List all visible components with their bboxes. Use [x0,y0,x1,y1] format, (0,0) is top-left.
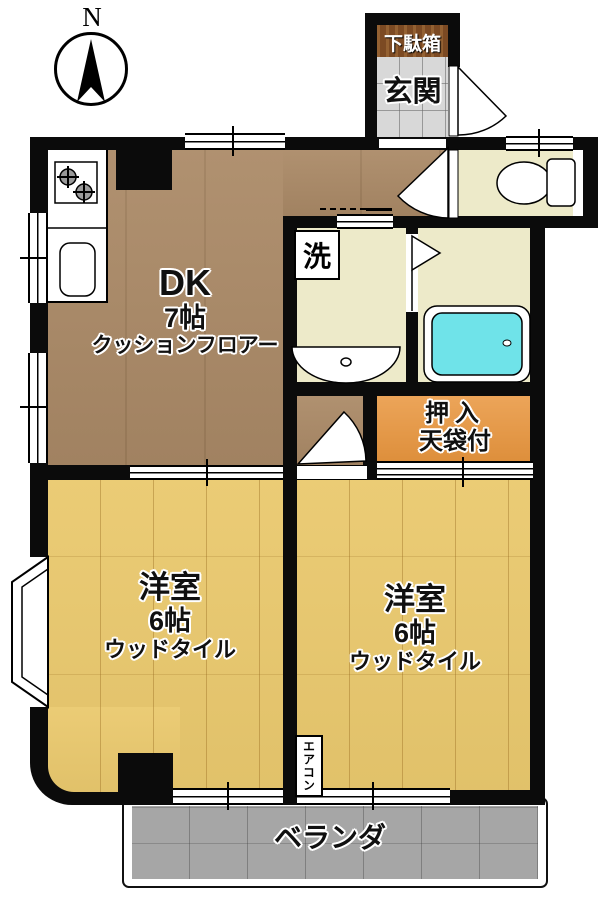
laundry-box: 洗 [294,230,340,280]
closet-note: 天袋付 [377,428,533,456]
aircon-box: エアコン [295,735,323,797]
compass-needle-icon [77,39,105,102]
western-right-size: 6帖 [290,618,540,649]
closet-name: 押入 [377,400,533,428]
western-left-floor-type: ウッドタイル [45,637,295,662]
closet-label-block: 押入 天袋付 [377,400,533,455]
toilet-door-swing [398,148,448,218]
toilet-tank-icon [547,159,575,206]
veranda-label: ベランダ [230,822,430,854]
western-right-floor-type: ウッドタイル [290,649,540,674]
dk-label-block: DK 7帖 クッションフロアー [55,262,315,359]
toilet-bowl-icon [497,162,551,204]
western-left-label-block: 洋室 6帖 ウッドタイル [45,570,295,662]
entrance-door-leaf [449,66,458,136]
washbasin-drain-icon [341,358,351,366]
entrance-door-swing [458,67,506,135]
laundry-label: 洗 [303,235,331,275]
western-left-name: 洋室 [45,570,295,606]
dk-name: DK [55,262,315,303]
toilet-door-leaf [449,150,458,218]
bedroom-door-swing [298,412,366,464]
bay-window [12,557,48,707]
western-right-label-block: 洋室 6帖 ウッドタイル [290,582,540,674]
shoe-cabinet-label: 下駄箱 [377,29,448,56]
floor-plan: N [0,0,603,900]
western-left-size: 6帖 [45,606,295,637]
dk-size: 7帖 [55,303,315,334]
dk-floor-type: クッションフロアー [55,334,315,358]
entrance-label: 玄関 [377,76,448,109]
aircon-label: エアコン [301,740,318,792]
western-right-name: 洋室 [290,582,540,618]
